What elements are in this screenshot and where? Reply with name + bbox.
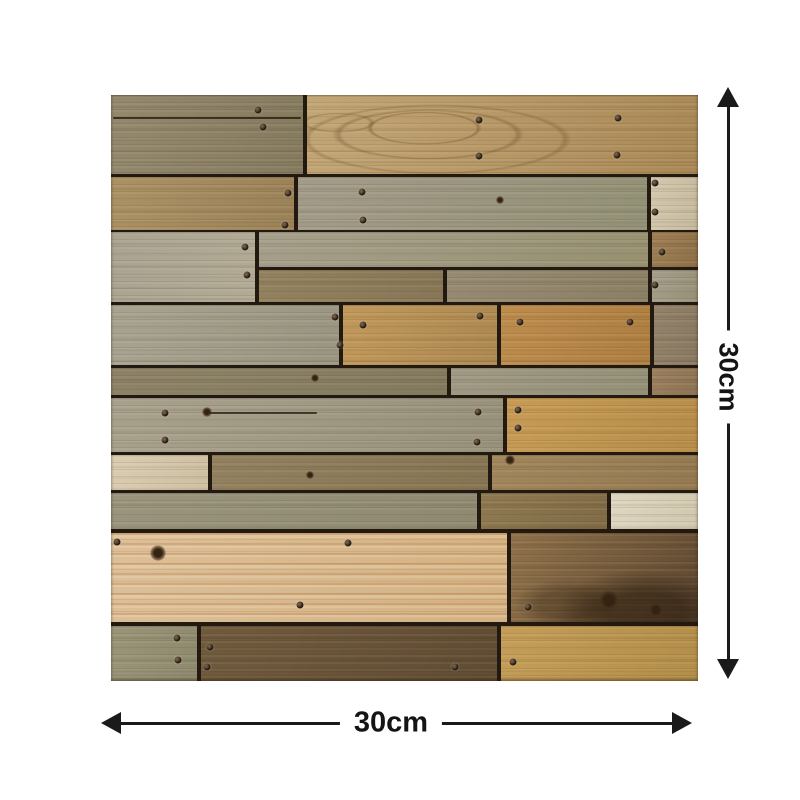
- wood-plank: [507, 398, 698, 452]
- nail-head: [360, 322, 367, 329]
- wood-knot: [599, 590, 619, 610]
- wood-plank: [111, 455, 208, 490]
- nail-head: [297, 602, 304, 609]
- nail-head: [659, 249, 666, 256]
- wood-plank: [111, 177, 294, 230]
- wood-plank: [501, 305, 650, 365]
- nail-head: [255, 107, 262, 114]
- nail-head: [114, 539, 121, 546]
- panel-height-label: 30cm: [711, 330, 746, 423]
- nail-head: [652, 282, 659, 289]
- wood-knot: [311, 374, 319, 382]
- wood-plank: [447, 270, 648, 302]
- nail-head: [162, 437, 169, 444]
- wood-knot: [202, 407, 212, 417]
- nail-head: [517, 319, 524, 326]
- wood-plank: [111, 305, 339, 365]
- wood-plank: [611, 493, 698, 529]
- wood-plank: [654, 305, 698, 365]
- nail-head: [477, 313, 484, 320]
- wood-plank: [201, 626, 497, 681]
- wood-knot: [150, 545, 166, 561]
- nail-head: [162, 410, 169, 417]
- wood-plank: [111, 232, 255, 302]
- nail-head: [475, 409, 482, 416]
- panel-height-arrow: 30cm: [717, 87, 739, 679]
- nail-head: [285, 190, 292, 197]
- panel-width-label: 30cm: [340, 705, 442, 742]
- wood-plank: [481, 493, 607, 529]
- wood-plank: [651, 177, 698, 230]
- wood-crack: [207, 412, 317, 414]
- nail-head: [204, 664, 211, 671]
- nail-head: [515, 425, 522, 432]
- nail-head: [207, 644, 214, 651]
- wood-plank: [259, 232, 648, 267]
- nail-head: [627, 319, 634, 326]
- wood-plank: [451, 368, 648, 395]
- panel-width-arrow: 30cm: [101, 712, 692, 734]
- nail-head: [476, 117, 483, 124]
- wood-plank: [111, 493, 477, 529]
- wood-knot: [505, 455, 515, 465]
- wood-knot: [496, 196, 504, 204]
- nail-head: [615, 115, 622, 122]
- nail-head: [337, 342, 344, 349]
- wood-plank: [212, 455, 488, 490]
- wood-plank: [111, 533, 507, 622]
- nail-head: [510, 659, 517, 666]
- nail-head: [452, 664, 459, 671]
- nail-head: [242, 244, 249, 251]
- nail-head: [174, 635, 181, 642]
- nail-head: [282, 222, 289, 229]
- wood-plank: [111, 95, 303, 174]
- wood-knot: [306, 471, 314, 479]
- wood-crack: [113, 117, 301, 119]
- wood-plank: [259, 270, 443, 302]
- nail-head: [525, 604, 532, 611]
- wood-plank: [111, 368, 447, 395]
- wood-plank: [298, 177, 647, 230]
- nail-head: [360, 217, 367, 224]
- wood-plank: [492, 455, 698, 490]
- arrow-down-icon: [717, 659, 739, 679]
- nail-head: [474, 439, 481, 446]
- nail-head: [244, 272, 251, 279]
- wood-plank: [307, 95, 698, 174]
- nail-head: [614, 152, 621, 159]
- wood-plank: [501, 626, 698, 681]
- nail-head: [332, 314, 339, 321]
- nail-head: [652, 209, 659, 216]
- nail-head: [175, 657, 182, 664]
- nail-head: [652, 180, 659, 187]
- wood-knot: [649, 603, 663, 617]
- nail-head: [476, 153, 483, 160]
- wood-plank: [343, 305, 497, 365]
- arrow-right-icon: [672, 712, 692, 734]
- wood-plank: [652, 270, 698, 302]
- wood-panel-image: [111, 95, 698, 681]
- nail-head: [515, 407, 522, 414]
- nail-head: [345, 540, 352, 547]
- nail-head: [260, 124, 267, 131]
- wood-plank: [111, 398, 503, 452]
- wood-plank: [111, 626, 197, 681]
- product-figure: 30cm 30cm: [0, 0, 800, 800]
- nail-head: [359, 189, 366, 196]
- wood-plank: [652, 368, 698, 395]
